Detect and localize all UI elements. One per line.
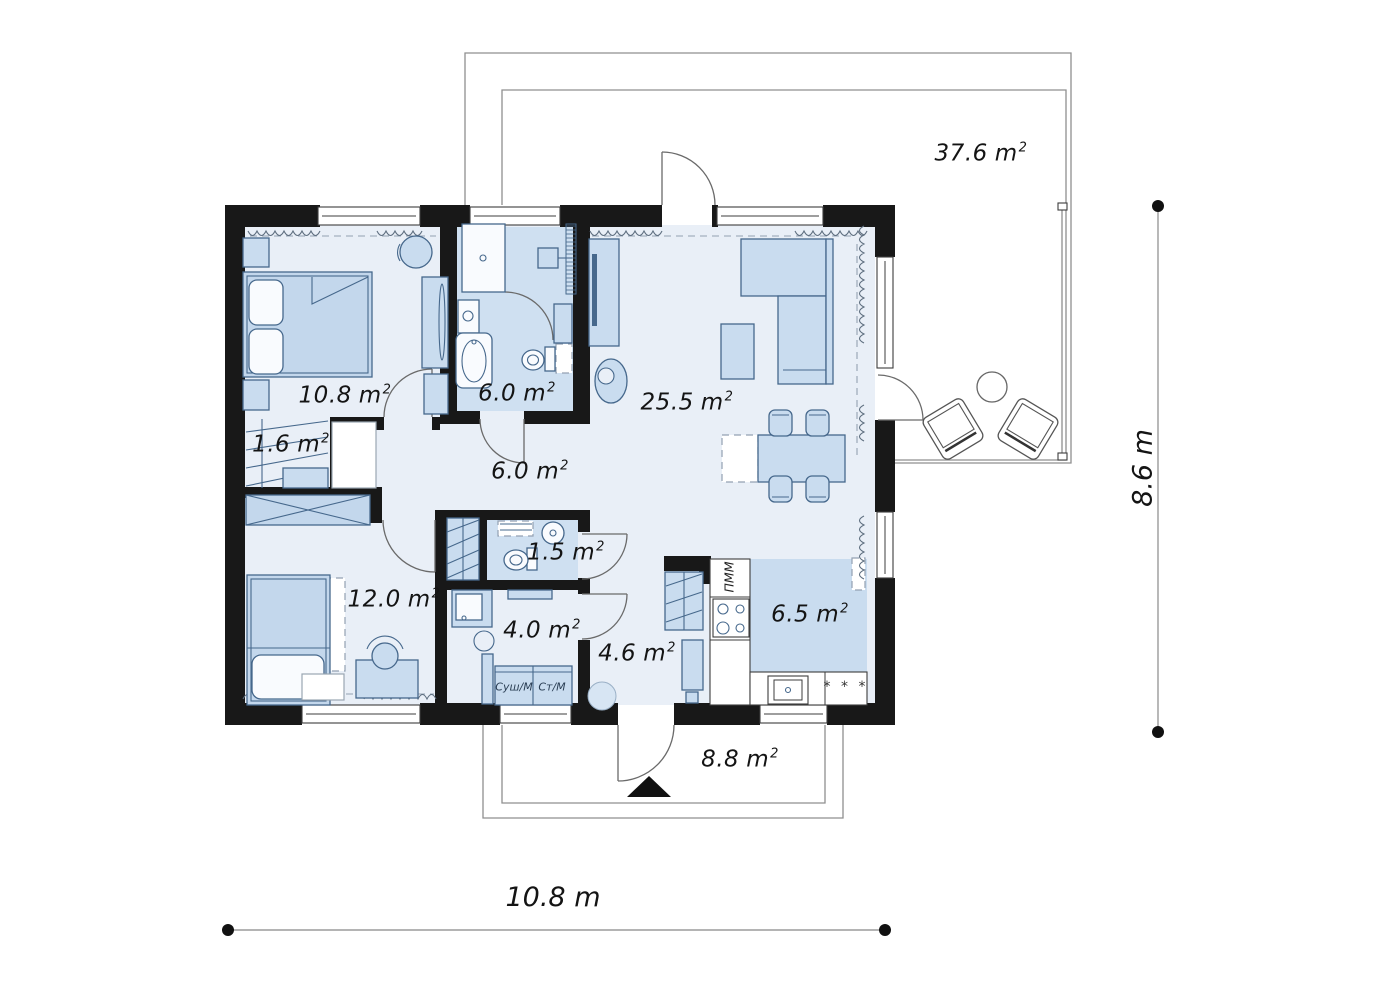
window [877,512,893,578]
wall-segment [524,411,590,424]
wall-segment [432,417,440,430]
dining-chair [806,410,829,436]
washer-label: Ст/М [538,681,565,694]
hall-cabinet [332,422,376,488]
wall-segment [875,578,895,725]
wall-segment [875,205,895,257]
coat-closet [665,572,703,630]
floor-plan-page: 37.6m2 10.8m2 6.0m2 25.5m2 1.6m2 6.0m2 1… [0,0,1400,990]
bathroom-cabinet [554,304,572,343]
shelf-box [283,468,328,488]
furniture-terrace [921,372,1060,461]
terrace-table [977,372,1007,402]
window [717,207,823,225]
window [500,705,571,723]
terrace-chair [996,397,1060,462]
kitchen-sink [768,676,808,704]
utility-shelf [508,590,552,599]
nightstand [302,674,344,700]
wall-segment [225,205,320,227]
entrance-door [618,725,674,781]
shelving-niche [447,518,479,580]
floor-plan-drawing [0,0,1400,990]
shower-tray [462,224,505,292]
area-label-bedroom-1: 10.8m2 [299,383,392,409]
bathroom-radiator [566,224,576,294]
dresser [424,374,448,414]
washbasin [458,300,479,333]
furniture-hall [332,422,376,488]
double-bed [243,272,372,377]
nightstand [243,238,269,267]
dimension-width-label: 10.8 m [505,882,600,913]
nightstand [243,380,269,410]
entrance-rug [588,682,616,710]
kitchen-corner-dashed [852,558,865,590]
dining-chair [769,476,792,502]
window [877,257,893,368]
wall-segment [578,510,590,532]
window [318,207,420,225]
dining-table [758,435,845,482]
area-label-bedroom-2: 12.0m2 [348,587,441,613]
area-label-wc: 1.5m2 [527,540,605,566]
shoe-box [686,692,698,703]
area-label-porch: 8.8m2 [701,747,779,773]
wall-segment [827,703,895,725]
window [470,207,560,225]
coffee-table [721,324,754,379]
table-extension [722,435,758,482]
lamp-shade [598,368,614,384]
dryer-label: Суш/М [495,681,532,694]
window [302,705,420,723]
bench [682,640,703,690]
wall-segment [225,205,245,725]
dimension-height-label: 8.6 m [1128,429,1159,507]
tv [592,254,597,326]
stove [713,599,749,637]
utility-strip [482,654,493,704]
dishwasher-label: ПММ [722,562,737,593]
wardrobe-crossed [246,495,370,525]
armchair-round [400,236,432,268]
wall-segment [578,578,590,594]
area-label-terrace: 37.6m2 [935,141,1028,167]
area-label-kitchen: 6.5m2 [771,602,849,628]
wall-segment [674,703,760,725]
wall-segment [447,580,590,590]
terrace-door-top [662,152,715,205]
wall-segment [370,487,382,523]
area-label-living-room: 25.5m2 [641,390,734,416]
area-label-bathroom: 6.0m2 [478,381,556,407]
fridge-label: * * * [824,679,869,695]
wall-segment [225,703,302,725]
pillow [249,280,283,325]
dining-chair [769,410,792,436]
bathroom-dashed-cabinet [556,344,572,373]
porch-outline [483,725,843,818]
window [760,705,827,723]
area-label-hall: 6.0m2 [491,459,569,485]
wall-segment [875,420,895,512]
dining-chair [806,476,829,502]
wall-segment [420,703,500,725]
shower-head [538,248,558,268]
area-label-hallway: 4.6m2 [598,641,676,667]
terrace-door-right [878,375,923,420]
area-label-utility: 4.0m2 [503,618,581,644]
area-label-wardrobe: 1.6m2 [252,432,330,458]
terrace-chair [921,397,985,462]
pillow [249,329,283,374]
wc-radiator [498,521,533,536]
wall-segment [479,520,487,580]
